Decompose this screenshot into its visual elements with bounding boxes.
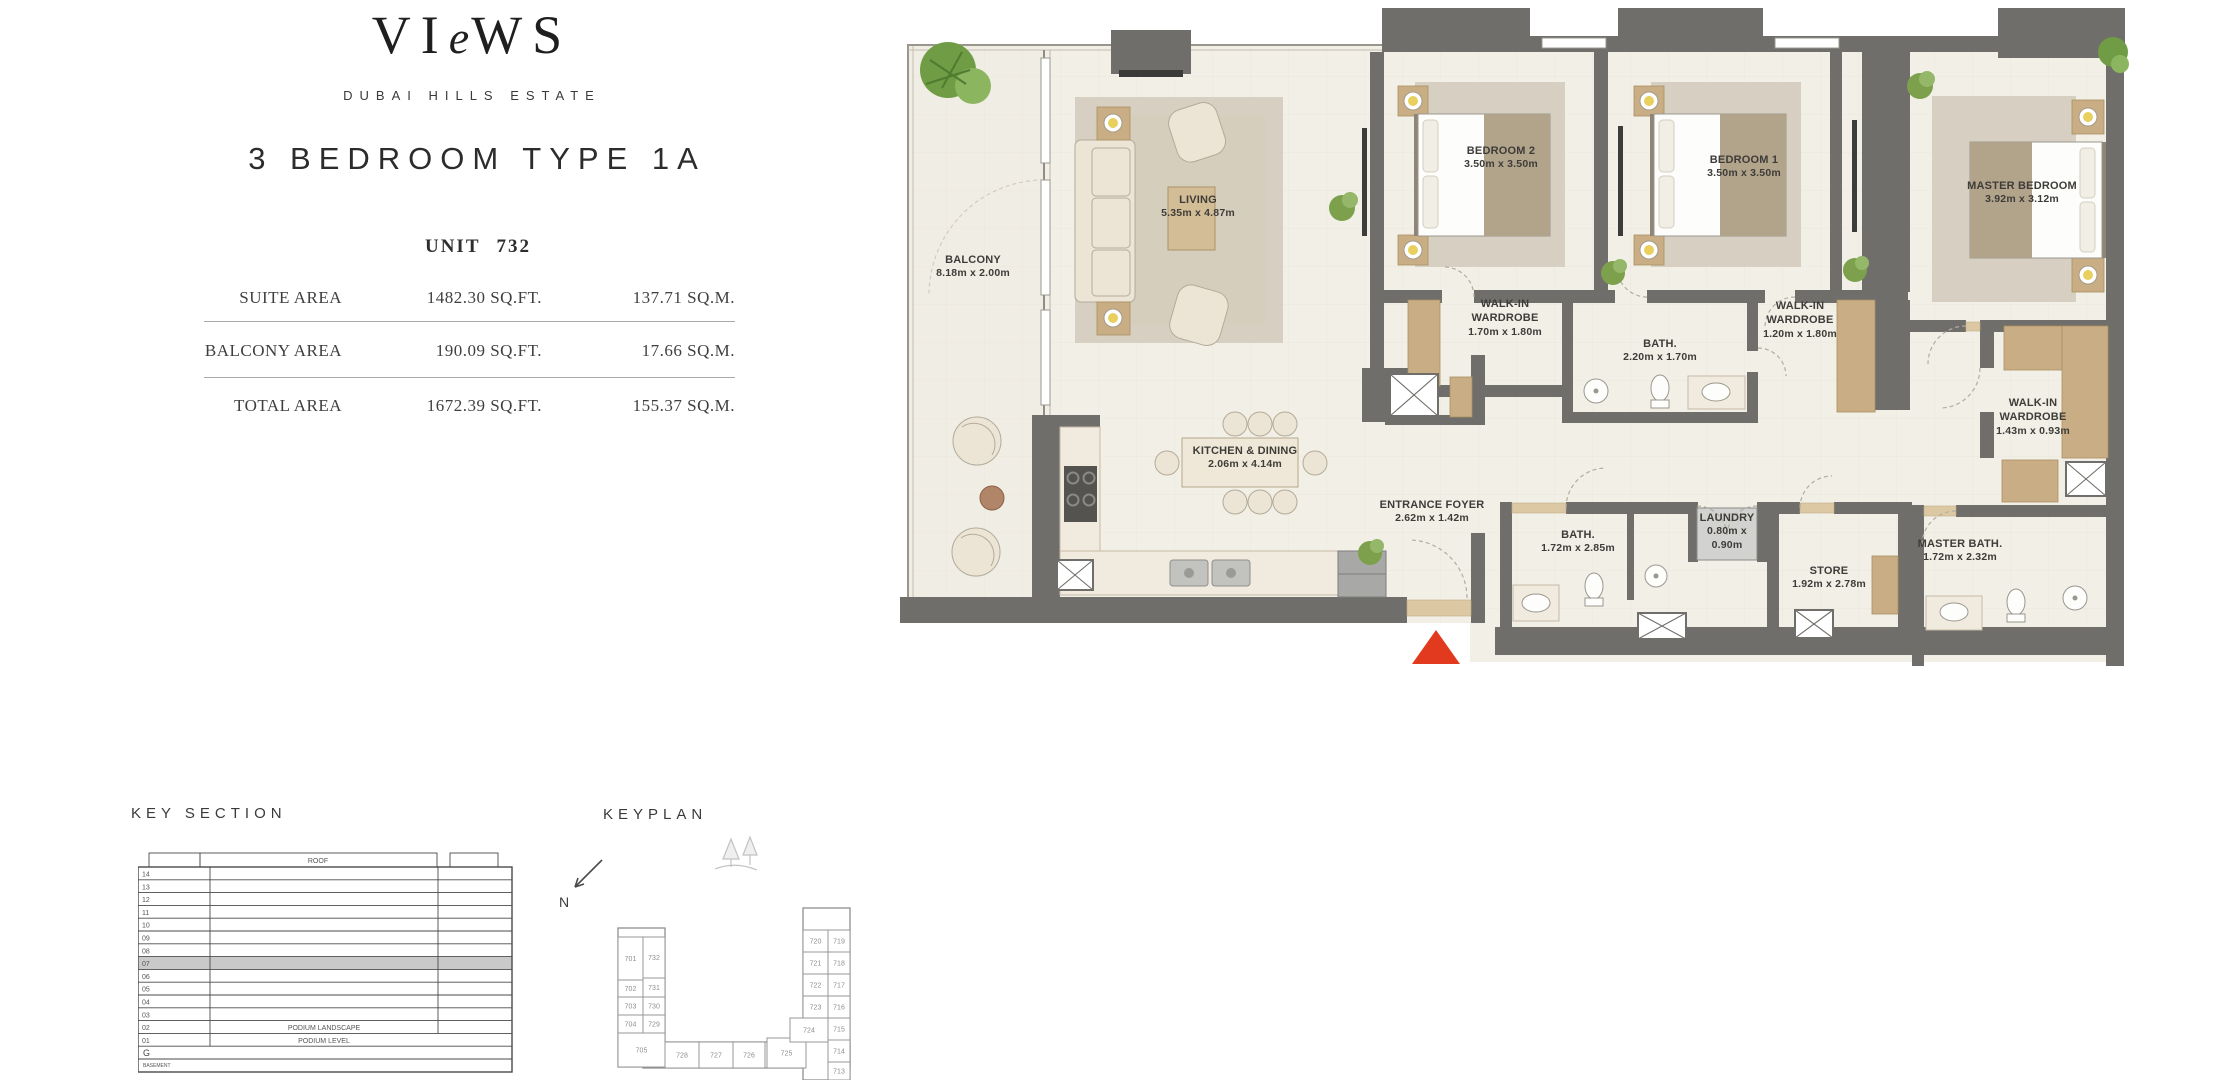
room-label-balcony: BALCONY8.18m x 2.00m [923,253,1023,281]
ground-label: G [143,1048,150,1058]
room-label-walk-in-wardrobe-2: WALK-IN WARDROBE1.70m x 1.80m [1459,297,1551,339]
room-label-living: LIVING5.35m x 4.87m [1143,193,1253,221]
keyplan-unit-number: 726 [743,1053,755,1060]
room-label-store: STORE1.92m x 2.78m [1774,564,1884,592]
views-logo: VIeWS [272,4,672,66]
key-section-diagram: ROOF 14131211100908070605040302PODIUM LA… [138,845,518,1077]
logo-e: e [449,12,471,63]
keyplan-unit-number: 727 [710,1053,722,1060]
floor-number: 11 [142,910,149,917]
area-sqm: 155.37 SQ.M. [542,396,735,416]
logo-text-2: WS [471,5,572,65]
keyplan-unit-number: 724 [803,1028,815,1035]
room-label-master-bedroom: MASTER BEDROOM3.92m x 3.12m [1952,179,2092,207]
trees-icon [715,837,757,870]
floor-number: 12 [142,897,150,904]
key-section-roof: ROOF [149,853,498,867]
room-label-bedroom-1: BEDROOM 13.50m x 3.50m [1689,153,1799,181]
window-wall [1041,50,1050,415]
table-row: TOTAL AREA 1672.39 SQ.FT. 155.37 SQ.M. [204,378,735,416]
floor-number: 06 [142,974,150,981]
keyplan-unit-number: 731 [648,985,660,992]
area-table: SUITE AREA 1482.30 SQ.FT. 137.71 SQ.M. B… [204,284,735,416]
keyplan-unit-number: 728 [676,1053,688,1060]
room-label-bath-shared: BATH.2.20m x 1.70m [1605,337,1715,365]
keyplan-unit-number: 702 [625,986,637,993]
floor-number: 10 [142,923,150,930]
key-section-highlight-row [138,957,512,970]
keyplan-unit-number: 705 [636,1048,648,1055]
keyplan-unit-number: 722 [810,983,822,990]
keyplan-unit-number: 714 [833,1049,845,1056]
unit-number-line: UNIT732 [278,236,678,258]
room-label-bedroom-2: BEDROOM 23.50m x 3.50m [1446,144,1556,172]
keyplan-title: KEYPLAN [603,806,707,823]
area-label: BALCONY AREA [204,341,342,361]
floor-number: 04 [142,1000,150,1007]
keyplan-unit-number: 732 [648,955,660,962]
entrance-marker-icon [1412,630,1460,664]
keyplan-unit-number: 720 [810,939,822,946]
room-label-master-bath: MASTER BATH.1.72m x 2.32m [1917,537,2003,565]
unit-label: UNIT [425,236,481,257]
table-row: BALCONY AREA 190.09 SQ.FT. 17.66 SQ.M. [204,322,735,378]
brochure-page: VIeWS DUBAI HILLS ESTATE 3 BEDROOM TYPE … [0,0,2220,1080]
unit-number: 732 [497,236,532,257]
keyplan-unit-number: 718 [833,961,845,968]
logo-text: VI [372,5,449,65]
floor-number: 05 [142,987,150,994]
room-label-entrance-foyer: ENTRANCE FOYER2.62m x 1.42m [1367,498,1497,526]
key-section-title: KEY SECTION [131,805,287,822]
keyplan-unit-number: 725 [781,1051,793,1058]
keyplan-unit-number: 716 [833,1005,845,1012]
floor-number: 03 [142,1012,150,1019]
floor-plan [870,0,2130,680]
roof-label: ROOF [308,858,328,865]
keyplan-unit-number: 704 [625,1022,637,1029]
keyplan-unit-number: 715 [833,1027,845,1034]
keyplan-unit-number: 719 [833,939,845,946]
keyplan-unit-number: 713 [833,1069,845,1076]
table-row: SUITE AREA 1482.30 SQ.FT. 137.71 SQ.M. [204,284,735,322]
area-sqft: 1482.30 SQ.FT. [342,288,542,308]
podium-landscape-label: PODIUM LANDSCAPE [288,1025,361,1032]
area-sqm: 137.71 SQ.M. [542,288,735,308]
podium-level-label: PODIUM LEVEL [298,1038,350,1045]
north-label: N [559,894,569,910]
keyplan-unit-number: 703 [625,1004,637,1011]
area-sqft: 1672.39 SQ.FT. [342,396,542,416]
area-label: TOTAL AREA [204,396,342,416]
floor-number: 08 [142,948,150,955]
keyplan-unit-number: 723 [810,1005,822,1012]
keyplan-unit-number: 730 [648,1004,660,1011]
keyplan-unit-number: 717 [833,983,845,990]
keyplan-unit-number: 701 [625,956,637,963]
area-label: SUITE AREA [204,288,342,308]
floor-number: 07 [142,961,150,968]
floor-number: 01 [142,1038,150,1045]
basement-label: BASEMENT [143,1063,171,1069]
estate-name: DUBAI HILLS ESTATE [272,88,672,103]
north-arrow: N [559,860,602,910]
page-title: 3 BEDROOM TYPE 1A [222,141,732,177]
floor-number: 09 [142,936,150,943]
bedroom-2-furniture [1398,82,1565,267]
room-label-laundry: LAUNDRY0.80m x 0.90m [1694,511,1760,553]
keyplan-unit-number: 721 [810,961,822,968]
room-label-walk-in-wardrobe-1: WALK-IN WARDROBE1.20m x 1.80m [1754,299,1846,341]
floor-number: 13 [142,884,150,891]
keyplan-unit-number: 729 [648,1022,660,1029]
area-sqft: 190.09 SQ.FT. [342,341,542,361]
keyplan-diagram: N 70173270273170373070472970572872772672… [545,825,880,1080]
room-label-bath-2: BATH.1.72m x 2.85m [1523,528,1633,556]
floor-number: 02 [142,1025,150,1032]
floor-number: 14 [142,872,150,879]
room-label-kitchen-dining: KITCHEN & DINING2.06m x 4.14m [1175,444,1315,472]
room-label-walk-in-wardrobe-master: WALK-IN WARDROBE1.43m x 0.93m [1995,396,2071,438]
area-sqm: 17.66 SQ.M. [542,341,735,361]
